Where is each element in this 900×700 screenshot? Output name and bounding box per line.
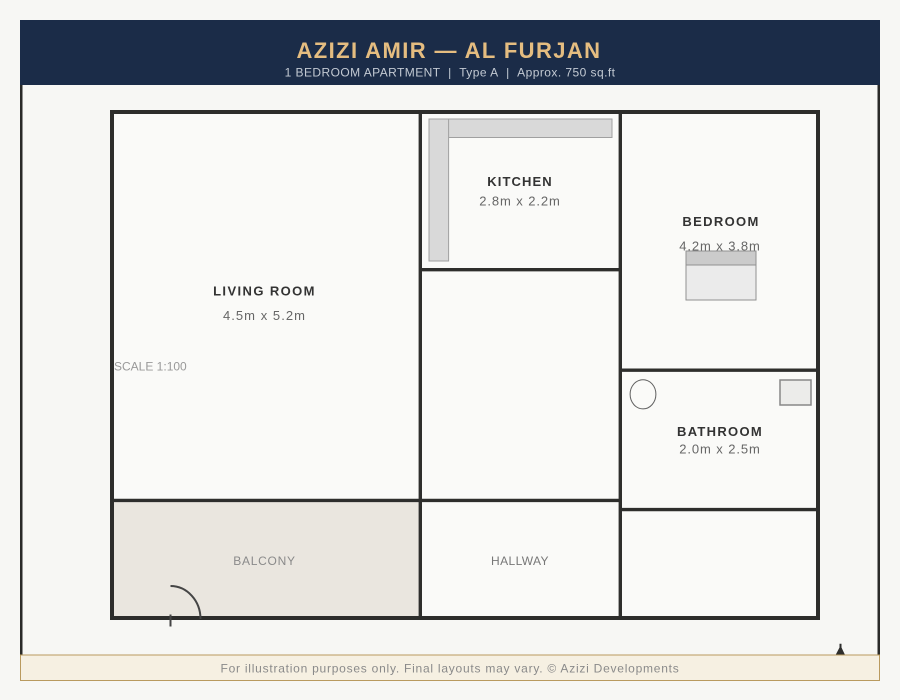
svg-text:4.5m x 5.2m: 4.5m x 5.2m	[223, 308, 306, 323]
svg-text:BEDROOM: BEDROOM	[682, 214, 759, 229]
svg-text:1 BEDROOM APARTMENT | Type A: 1 BEDROOM APARTMENT | Type A | Approx. 7…	[285, 66, 616, 80]
svg-text:SCALE 1:100: SCALE 1:100	[114, 360, 187, 374]
svg-text:KITCHEN: KITCHEN	[487, 174, 552, 189]
svg-text:2.0m x 2.5m: 2.0m x 2.5m	[679, 442, 760, 457]
svg-text:2.8m x 2.2m: 2.8m x 2.2m	[479, 194, 560, 209]
svg-text:BALCONY: BALCONY	[233, 554, 296, 568]
svg-text:AZIZI AMIR — AL FURJAN: AZIZI AMIR — AL FURJAN	[297, 38, 602, 63]
svg-text:4.2m x 3.8m: 4.2m x 3.8m	[679, 239, 760, 254]
svg-text:HALLWAY: HALLWAY	[491, 554, 549, 568]
svg-text:LIVING ROOM: LIVING ROOM	[213, 284, 316, 299]
svg-text:BATHROOM: BATHROOM	[677, 424, 763, 439]
svg-text:For illustration purposes only: For illustration purposes only. Final la…	[221, 662, 680, 676]
